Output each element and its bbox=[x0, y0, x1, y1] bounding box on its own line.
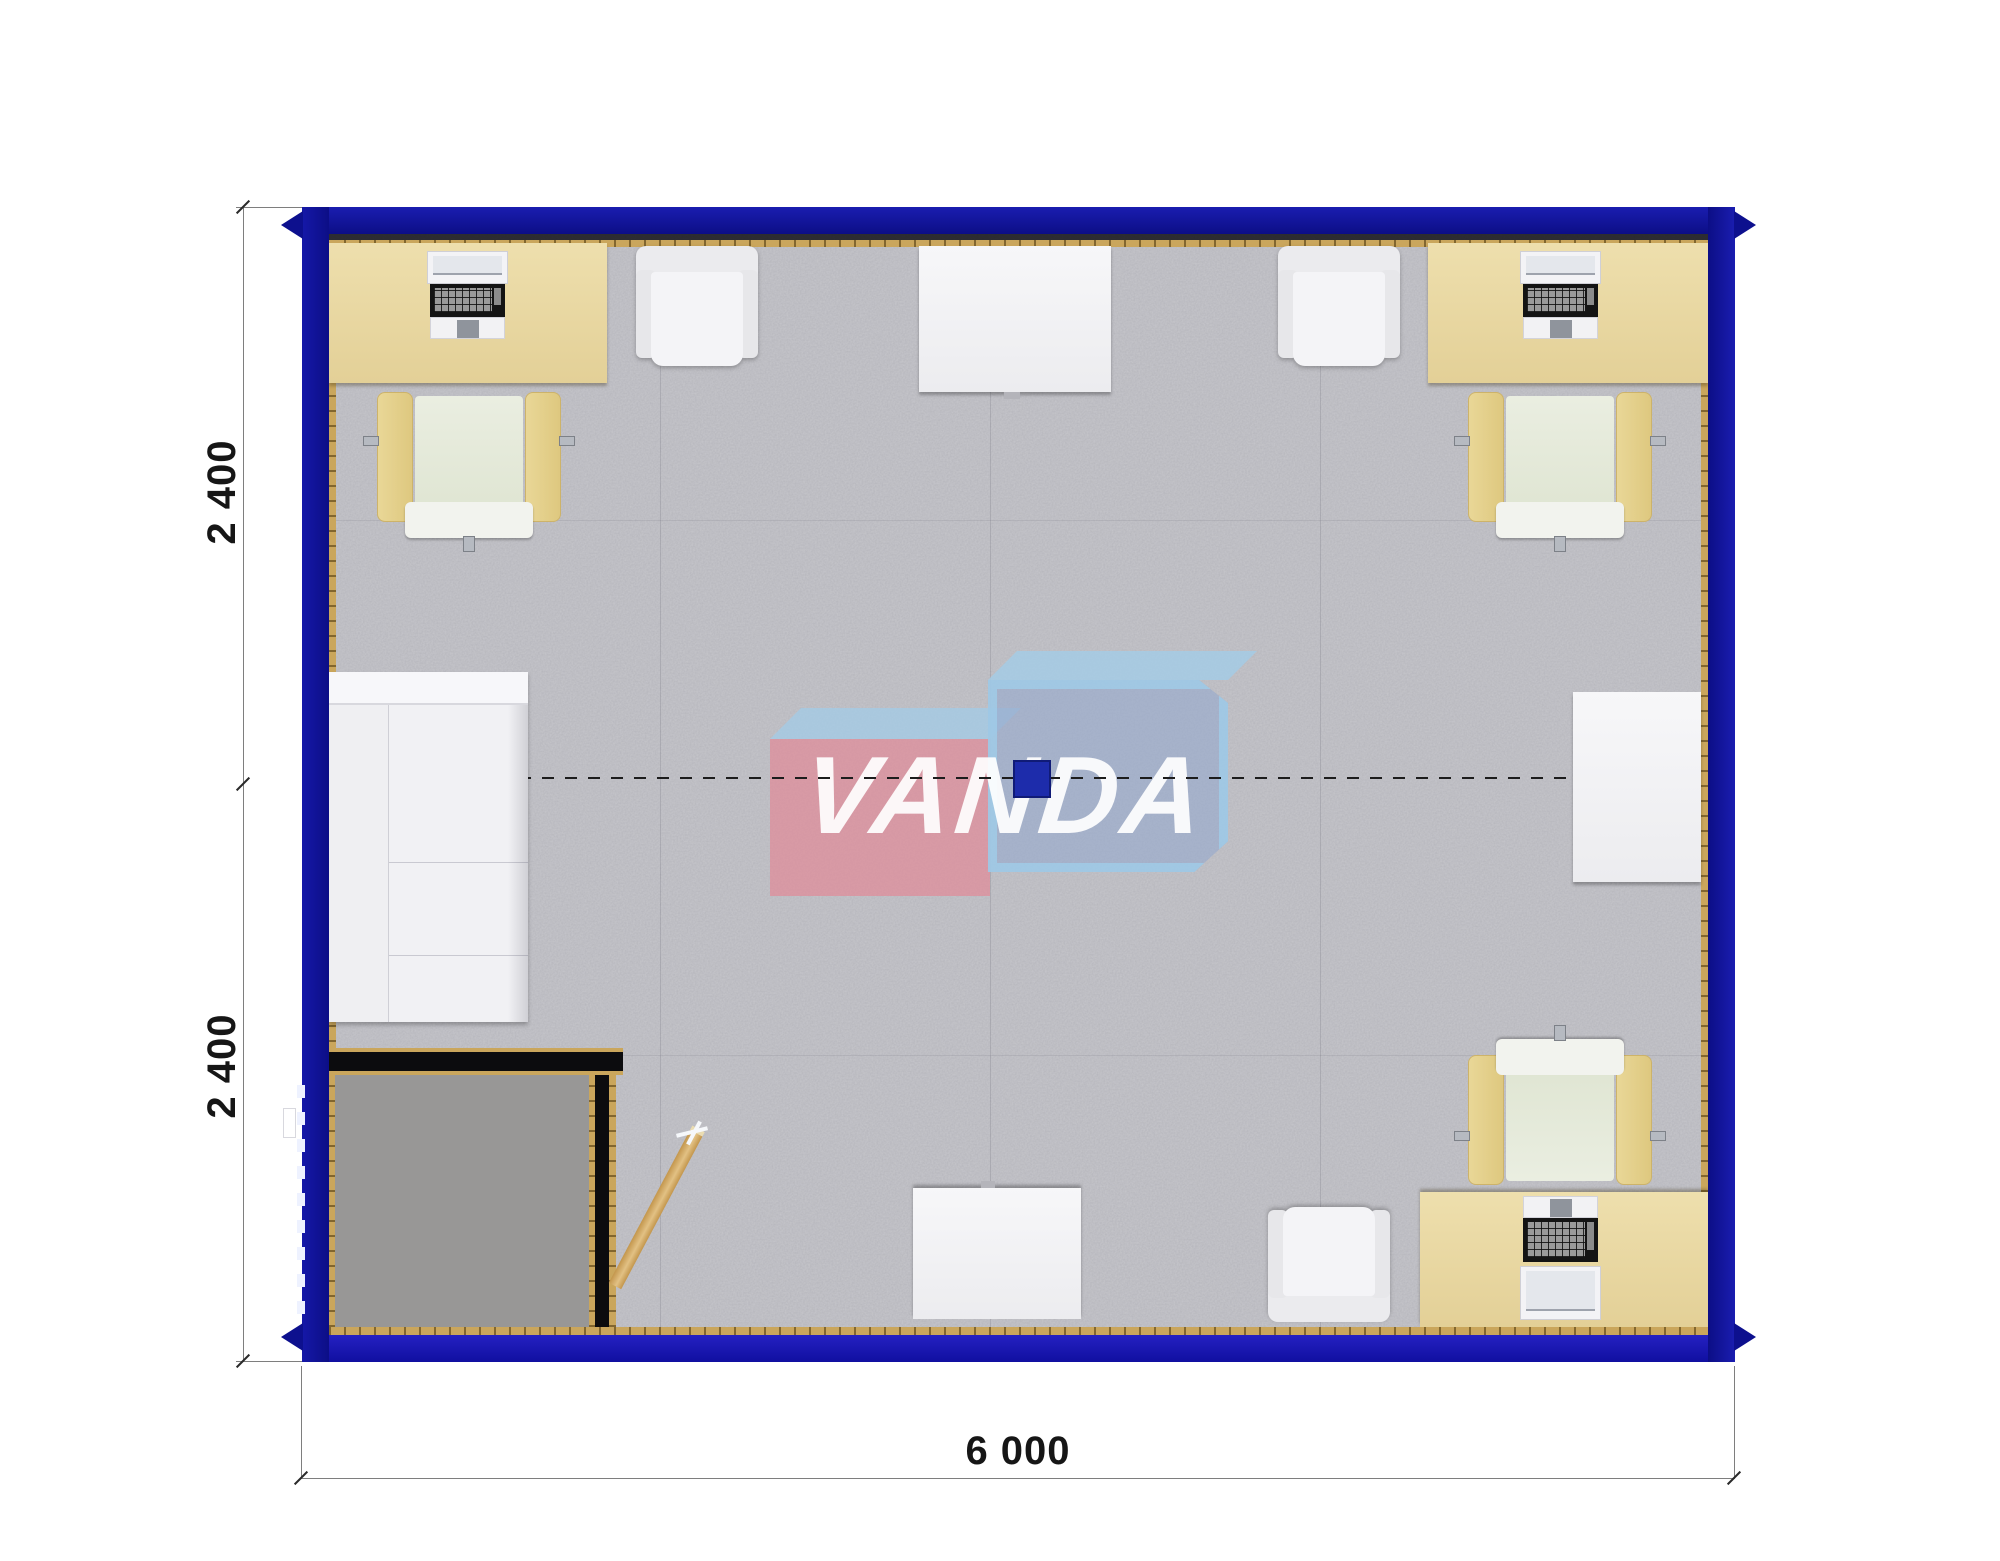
watermark-text: VANDA bbox=[748, 726, 1263, 866]
keyboard-keys bbox=[1527, 1222, 1585, 1257]
unit-vent bbox=[457, 320, 479, 338]
dim-ext-top-left bbox=[236, 207, 304, 208]
keyboard-numpad bbox=[494, 288, 501, 305]
vestibule-trim bbox=[609, 1075, 616, 1327]
monitor bbox=[1520, 251, 1601, 284]
system-unit bbox=[430, 317, 505, 339]
keyboard bbox=[430, 284, 505, 317]
office-chair-top-left bbox=[377, 384, 561, 552]
keyboard bbox=[1523, 284, 1598, 317]
armchair-seat bbox=[1283, 1207, 1375, 1296]
armchair-seat bbox=[1293, 272, 1385, 366]
dim-ext-bottom-left bbox=[236, 1361, 304, 1362]
system-unit bbox=[1523, 1196, 1598, 1218]
monitor bbox=[427, 251, 508, 284]
entrance-door-marking bbox=[297, 1085, 305, 1323]
container-wall-top bbox=[302, 207, 1735, 234]
keyboard-keys bbox=[434, 288, 492, 312]
chair-armrest bbox=[1468, 1055, 1504, 1185]
chair-caster bbox=[1650, 436, 1666, 446]
container-wall-right bbox=[1708, 207, 1735, 1362]
chair-caster bbox=[559, 436, 575, 446]
computer-bottom-right bbox=[1520, 1196, 1601, 1320]
vestibule-wall-top bbox=[329, 1048, 623, 1075]
chair-seat bbox=[1496, 502, 1624, 538]
office-chair-bottom-right bbox=[1468, 1025, 1652, 1193]
table-leg-mark bbox=[981, 1181, 995, 1188]
wall-trim-bottom bbox=[329, 1327, 1708, 1335]
unit-vent bbox=[1550, 1199, 1572, 1217]
sofa-backrest bbox=[329, 672, 528, 705]
dim-label-left-bottom: 2 400 bbox=[200, 986, 244, 1146]
table-right-middle bbox=[1573, 692, 1701, 882]
center-column bbox=[1013, 760, 1051, 798]
chair-back-cushion bbox=[415, 396, 523, 514]
chair-seat bbox=[405, 502, 533, 538]
dim-ext-bottom-2 bbox=[1734, 1366, 1735, 1478]
dim-line-bottom bbox=[301, 1478, 1735, 1479]
system-unit bbox=[1523, 317, 1598, 339]
dim-label-bottom: 6 000 bbox=[918, 1428, 1118, 1474]
corner-fitting-bottom-right bbox=[1734, 1323, 1756, 1351]
armchair-seat bbox=[651, 272, 743, 366]
wall-trim-right bbox=[1701, 240, 1708, 1327]
computer-top-left bbox=[427, 251, 508, 339]
dim-label-left-top: 2 400 bbox=[200, 412, 244, 572]
corner-fitting-bottom-left bbox=[281, 1323, 303, 1351]
keyboard bbox=[1523, 1218, 1598, 1262]
container-wall-left bbox=[302, 207, 329, 1362]
table-bottom-center bbox=[913, 1188, 1081, 1319]
vestibule-floor bbox=[335, 1075, 589, 1327]
corner-fitting-top-right bbox=[1734, 211, 1756, 239]
table-leg-mark bbox=[1004, 392, 1020, 399]
entrance-handle bbox=[283, 1108, 296, 1138]
armchair-bottom bbox=[1268, 1207, 1390, 1322]
wall-shadow bbox=[329, 234, 1708, 240]
vestibule-wall-right bbox=[595, 1075, 609, 1327]
floor-plan-canvas: 2 400 2 400 6 000 VANDA bbox=[0, 0, 2000, 1561]
chair-caster bbox=[363, 436, 379, 446]
monitor-screen bbox=[1526, 1271, 1595, 1311]
chair-seat bbox=[1496, 1039, 1624, 1075]
chair-back-cushion bbox=[1506, 1063, 1614, 1181]
armchair-top-right bbox=[1278, 246, 1400, 366]
corner-fitting-top-left bbox=[281, 211, 303, 239]
unit-vent bbox=[1550, 320, 1572, 338]
sofa-left bbox=[329, 672, 528, 1022]
keyboard-numpad bbox=[1587, 288, 1594, 305]
chair-armrest bbox=[1616, 1055, 1652, 1185]
floor-seam bbox=[660, 246, 661, 1327]
table-top-center bbox=[919, 246, 1111, 392]
computer-top-right bbox=[1520, 251, 1601, 339]
watermark-box-top-face bbox=[988, 651, 1257, 680]
chair-back-cushion bbox=[1506, 396, 1614, 514]
sofa-shadow bbox=[508, 705, 528, 1022]
floor-seam bbox=[1320, 246, 1321, 1327]
keyboard-numpad bbox=[1587, 1222, 1594, 1250]
monitor-screen bbox=[1526, 256, 1595, 275]
sofa-armrest bbox=[329, 705, 389, 1022]
chair-caster bbox=[1554, 536, 1566, 552]
chair-caster bbox=[1454, 1131, 1470, 1141]
armchair-top-left bbox=[636, 246, 758, 366]
monitor-screen bbox=[433, 256, 502, 275]
dim-ext-bottom-1 bbox=[301, 1366, 302, 1478]
chair-caster bbox=[1554, 1025, 1566, 1041]
chair-caster bbox=[1454, 436, 1470, 446]
container-wall-bottom bbox=[302, 1335, 1735, 1362]
office-chair-top-right bbox=[1468, 384, 1652, 552]
chair-caster bbox=[463, 536, 475, 552]
chair-caster bbox=[1650, 1131, 1666, 1141]
keyboard-keys bbox=[1527, 288, 1585, 312]
monitor bbox=[1520, 1266, 1601, 1320]
